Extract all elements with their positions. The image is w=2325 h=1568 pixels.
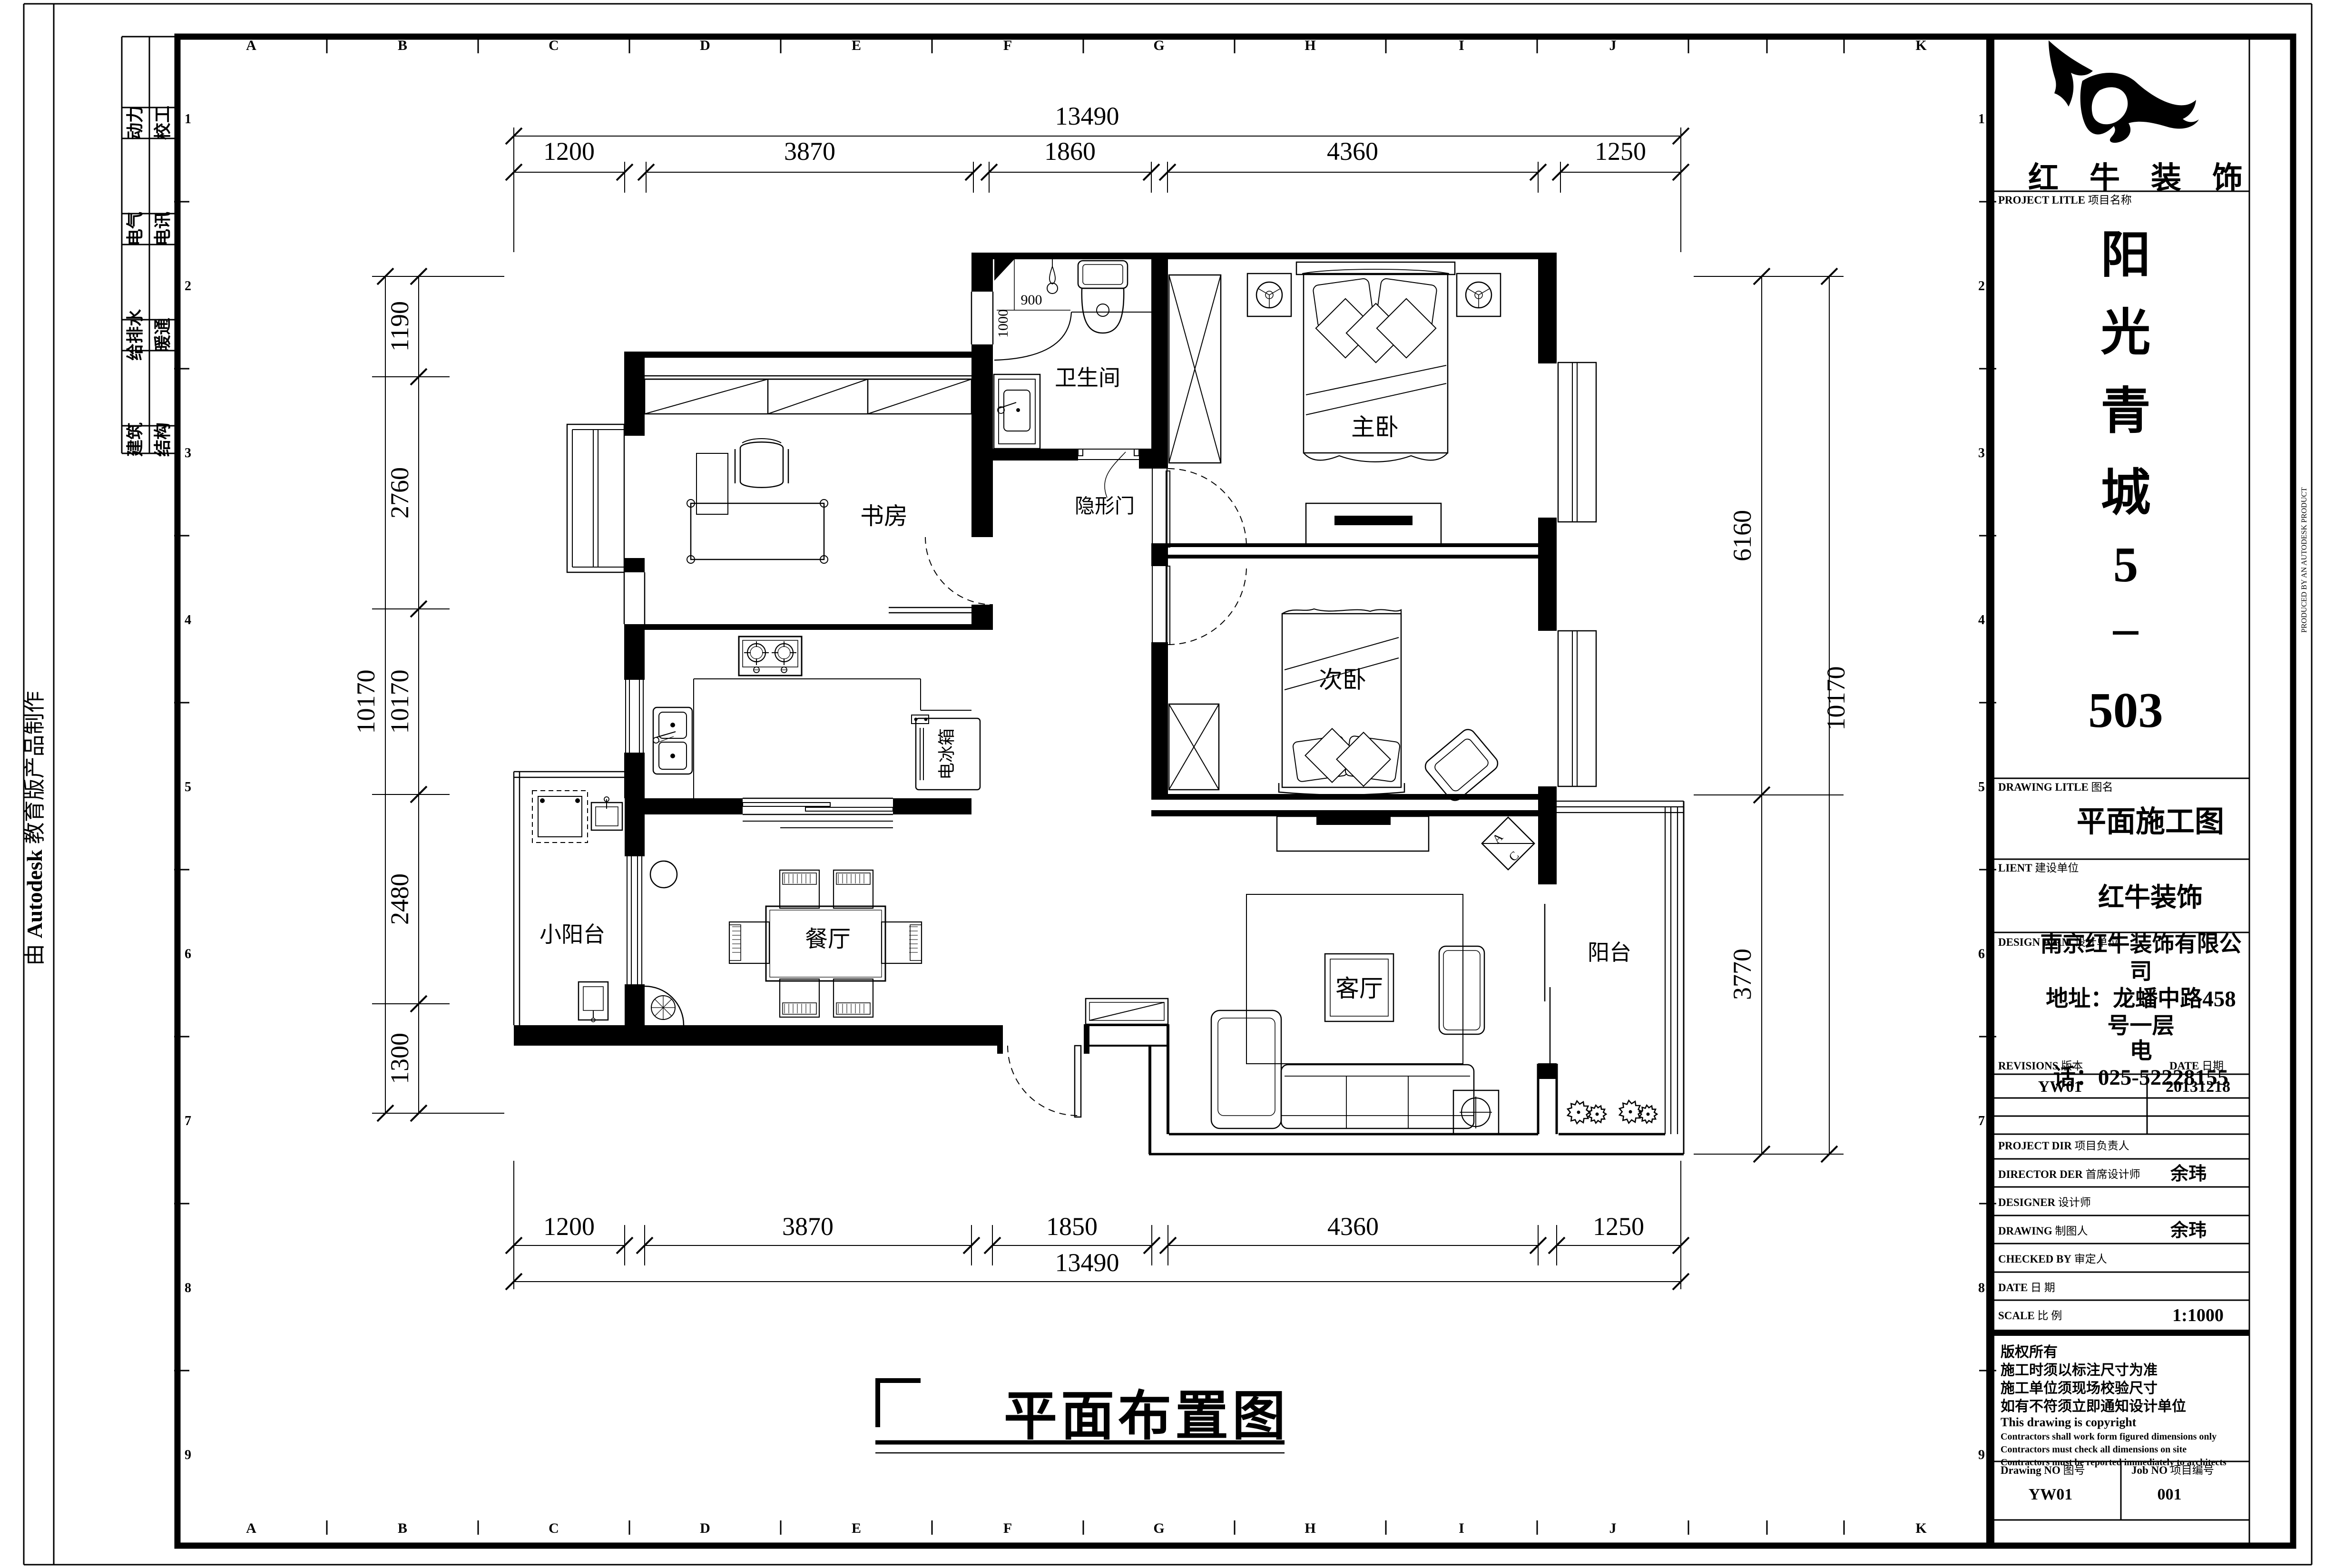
svg-text:1300: 1300 — [385, 1033, 414, 1084]
svg-text:DATE 日 期: DATE 日 期 — [1998, 1282, 2055, 1294]
svg-text:6: 6 — [185, 947, 191, 961]
svg-text:K: K — [1915, 38, 1927, 53]
svg-text:9: 9 — [185, 1448, 191, 1462]
svg-text:E: E — [852, 38, 861, 53]
svg-text:余玮: 余玮 — [2170, 1164, 2207, 1184]
svg-text:隐形门: 隐形门 — [1075, 496, 1135, 518]
svg-text:10170: 10170 — [385, 670, 414, 734]
svg-text:1190: 1190 — [385, 301, 414, 352]
svg-text:503: 503 — [2088, 682, 2163, 738]
svg-text:5: 5 — [1978, 780, 1985, 794]
svg-text:1860: 1860 — [1044, 137, 1096, 166]
svg-text:3870: 3870 — [782, 1212, 834, 1241]
svg-text:J: J — [1609, 38, 1617, 53]
svg-text:1200: 1200 — [543, 1212, 595, 1241]
svg-text:13490: 13490 — [1055, 1248, 1119, 1277]
svg-text:Drawing NO 图号: Drawing NO 图号 — [2001, 1464, 2085, 1476]
svg-text:7: 7 — [185, 1114, 191, 1128]
svg-text:电冰箱: 电冰箱 — [937, 728, 956, 780]
svg-text:CHECKED BY 审定人: CHECKED BY 审定人 — [1998, 1253, 2107, 1265]
svg-text:如有不符须立即通知设计单位: 如有不符须立即通知设计单位 — [2001, 1398, 2186, 1414]
svg-text:牛: 牛 — [2090, 161, 2120, 195]
svg-text:13490: 13490 — [1055, 102, 1119, 130]
svg-text:H: H — [1305, 1520, 1315, 1536]
svg-text:号一层: 号一层 — [2108, 1014, 2175, 1039]
svg-text:电气: 电气 — [126, 212, 145, 246]
svg-text:C: C — [549, 1520, 559, 1536]
svg-text:5: 5 — [2113, 537, 2139, 592]
svg-text:I: I — [1459, 38, 1464, 53]
svg-text:PRODUCED BY AN AUTODESK PRODUC: PRODUCED BY AN AUTODESK PRODUCT — [2300, 487, 2308, 633]
svg-text:光: 光 — [2100, 305, 2150, 361]
svg-text:南京红牛装饰有限公: 南京红牛装饰有限公 — [2041, 932, 2242, 957]
svg-text:给排水: 给排水 — [126, 309, 145, 361]
svg-text:DIRECTOR DER 首席设计师: DIRECTOR DER 首席设计师 — [1998, 1168, 2140, 1180]
svg-text:装: 装 — [2151, 161, 2181, 195]
svg-text:阳: 阳 — [2100, 227, 2150, 283]
svg-text:平面施工图: 平面施工图 — [2077, 805, 2224, 838]
svg-text:G: G — [1153, 1520, 1164, 1536]
svg-text:次卧: 次卧 — [1319, 666, 1366, 693]
svg-text:I: I — [1459, 1520, 1464, 1536]
svg-text:8: 8 — [185, 1281, 191, 1295]
svg-text:1250: 1250 — [1595, 137, 1646, 166]
svg-text:红: 红 — [2028, 161, 2059, 195]
svg-text:4360: 4360 — [1327, 137, 1378, 166]
svg-text:C: C — [549, 38, 559, 53]
svg-text:20131218: 20131218 — [2166, 1078, 2230, 1096]
svg-text:施工单位须现场校验尺寸: 施工单位须现场校验尺寸 — [2001, 1380, 2158, 1396]
svg-text:客厅: 客厅 — [1335, 975, 1383, 1002]
svg-text:6160: 6160 — [1728, 510, 1756, 561]
svg-text:A: A — [246, 38, 256, 53]
svg-text:7: 7 — [1978, 1114, 1985, 1128]
svg-text:8: 8 — [1978, 1281, 1985, 1295]
svg-text:餐厅: 餐厅 — [805, 927, 851, 952]
svg-text:10170: 10170 — [1822, 666, 1850, 731]
svg-text:This drawing is copyright: This drawing is copyright — [2001, 1415, 2137, 1429]
svg-text:阳台: 阳台 — [1588, 941, 1631, 965]
svg-text:10170: 10170 — [352, 670, 380, 734]
svg-text:G: G — [1153, 38, 1164, 53]
svg-text:4: 4 — [1978, 613, 1985, 627]
svg-text:3770: 3770 — [1728, 949, 1756, 1000]
svg-text:司: 司 — [2130, 960, 2152, 984]
svg-text:F: F — [1003, 38, 1012, 53]
svg-text:地址：龙蟠中路458: 地址：龙蟠中路458 — [2046, 987, 2236, 1011]
svg-text:1250: 1250 — [1593, 1212, 1644, 1241]
svg-text:D: D — [700, 38, 710, 53]
svg-text:–: – — [2113, 600, 2139, 656]
svg-text:4: 4 — [185, 613, 191, 627]
svg-text:主卧: 主卧 — [1351, 414, 1399, 441]
svg-text:001: 001 — [2158, 1486, 2182, 1503]
svg-text:2480: 2480 — [385, 873, 414, 925]
svg-text:3870: 3870 — [784, 137, 835, 166]
svg-text:1850: 1850 — [1046, 1212, 1098, 1241]
svg-text:小阳台: 小阳台 — [540, 922, 605, 947]
svg-text:9: 9 — [1978, 1448, 1985, 1462]
svg-text:3: 3 — [1978, 446, 1985, 461]
svg-text:D: D — [700, 1520, 710, 1536]
svg-text:卫生间: 卫生间 — [1055, 366, 1120, 390]
svg-text:由 Autodesk 教育版产品制作: 由 Autodesk 教育版产品制作 — [22, 691, 47, 966]
svg-text:5: 5 — [185, 780, 191, 794]
svg-text:Job NO 项目编号: Job NO 项目编号 — [2131, 1464, 2214, 1476]
svg-text:H: H — [1305, 38, 1315, 53]
svg-text:B: B — [398, 1520, 407, 1536]
svg-text:K: K — [1915, 1520, 1927, 1536]
svg-text:暖通: 暖通 — [153, 318, 172, 352]
svg-text:Contractors must check all dim: Contractors must check all dimensions on… — [2001, 1444, 2187, 1455]
svg-text:3: 3 — [185, 446, 191, 461]
svg-text:J: J — [1609, 1520, 1617, 1536]
svg-text:DRAWING 制图人: DRAWING 制图人 — [1998, 1225, 2088, 1237]
svg-text:4360: 4360 — [1327, 1212, 1379, 1241]
svg-text:REVISIONS 版本: REVISIONS 版本 — [1998, 1060, 2083, 1072]
svg-text:1:1000: 1:1000 — [2172, 1305, 2224, 1325]
svg-text:YW01: YW01 — [2038, 1078, 2082, 1096]
svg-text:DRAWING LITLE 图名: DRAWING LITLE 图名 — [1998, 781, 2113, 793]
svg-text:2: 2 — [185, 279, 191, 294]
svg-text:2760: 2760 — [385, 467, 414, 519]
svg-text:PROJECT LITLE 项目名称: PROJECT LITLE 项目名称 — [1998, 194, 2132, 206]
svg-text:余玮: 余玮 — [2170, 1220, 2207, 1241]
svg-text:Contractors shall work form fi: Contractors shall work form figured dime… — [2001, 1431, 2217, 1442]
svg-text:动力: 动力 — [126, 106, 145, 140]
svg-text:电讯: 电讯 — [153, 212, 172, 246]
svg-text:F: F — [1003, 1520, 1012, 1536]
svg-text:红牛装饰: 红牛装饰 — [2098, 883, 2203, 912]
svg-text:900: 900 — [1021, 292, 1042, 308]
svg-text:DATE 日期: DATE 日期 — [2169, 1060, 2224, 1072]
svg-text:城: 城 — [2100, 465, 2150, 521]
svg-text:YW01: YW01 — [2029, 1486, 2073, 1503]
svg-text:1000: 1000 — [995, 309, 1011, 338]
svg-text:饰: 饰 — [2212, 161, 2243, 195]
svg-text:2: 2 — [1978, 279, 1985, 294]
svg-text:1: 1 — [185, 112, 191, 127]
svg-text:青: 青 — [2100, 383, 2150, 439]
svg-text:结构: 结构 — [153, 422, 172, 457]
svg-text:PROJECT DIR 项目负责人: PROJECT DIR 项目负责人 — [1998, 1140, 2129, 1152]
svg-text:平面布置图: 平面布置图 — [1004, 1387, 1289, 1446]
svg-text:书房: 书房 — [860, 503, 908, 529]
svg-text:建筑: 建筑 — [126, 422, 145, 457]
svg-text:6: 6 — [1978, 947, 1985, 961]
svg-text:A: A — [246, 1520, 256, 1536]
svg-text:SCALE 比 例: SCALE 比 例 — [1998, 1310, 2062, 1322]
svg-text:施工时须以标注尺寸为准: 施工时须以标注尺寸为准 — [2001, 1362, 2158, 1378]
svg-text:LIENT 建设单位: LIENT 建设单位 — [1998, 862, 2079, 874]
svg-text:1200: 1200 — [543, 137, 595, 166]
svg-text:E: E — [852, 1520, 861, 1536]
svg-text:校工: 校工 — [153, 106, 172, 140]
svg-text:1: 1 — [1978, 112, 1985, 127]
svg-text:B: B — [398, 38, 407, 53]
svg-text:电: 电 — [2130, 1039, 2152, 1064]
svg-text:版权所有: 版权所有 — [2001, 1344, 2058, 1360]
svg-text:DESIGNER 设计师: DESIGNER 设计师 — [1998, 1196, 2091, 1208]
